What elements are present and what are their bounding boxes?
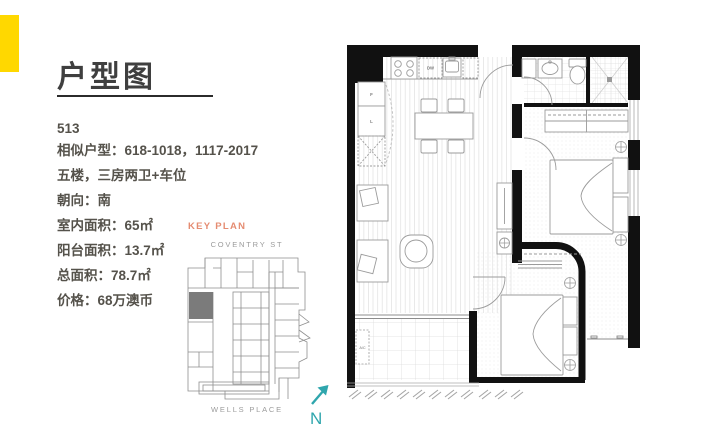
key-plan-map [183,252,311,404]
power-point-icon [616,235,627,246]
key-plan-building-outline [188,258,310,399]
desk-chair [357,254,376,273]
bathroom-cabinet [522,59,536,78]
key-plan-unit-highlight [189,292,213,319]
street-label-coventry: COVENTRY ST [183,240,311,249]
kitchen-stove [391,57,417,79]
desk-chair [360,188,379,207]
balcony-sliding-door [355,315,469,319]
floor-plan-drawing: DW F L [345,28,645,403]
dining-table [415,113,473,139]
edge-hatching [349,390,523,399]
power-point-icon [616,142,627,153]
detail-floor-rooms: 五楼，三房两卫+车位 [57,163,258,188]
accent-bar [0,15,19,72]
key-plan-label: KEY PLAN [188,221,246,232]
page-title: 户型图 [57,52,156,96]
dining-chair [448,99,464,112]
bedside-unit [613,197,628,232]
north-arrow-icon [312,385,329,404]
bed-2 [501,295,563,375]
compass: N [303,376,347,426]
north-label: N [310,409,322,426]
dining-chair [421,99,437,112]
bedside-unit [563,327,577,355]
round-table [405,240,427,262]
unit-number: 513 [57,120,258,138]
balustrade [347,383,479,386]
wardrobe [545,110,628,132]
power-point-icon [565,278,576,289]
detail-similar-units: 相似户型：618-1018，1117-2017 [57,138,258,163]
bedroom-1 [545,110,628,234]
dining-chair [448,140,464,153]
title-underline [57,95,213,97]
detail-orientation: 朝向：南 [57,188,258,213]
linen-label: L [370,119,373,124]
toilet [569,59,586,84]
ac-label: A/C [359,346,366,350]
dishwasher-label: DW [427,66,434,71]
bedside-unit [613,158,628,193]
kitchen-sink [443,57,461,77]
power-point-icon [565,360,576,371]
street-label-wells: WELLS PLACE [183,405,311,414]
dining-chair [421,140,437,153]
floor-plan-slide: 户型图 513 相似户型：618-1018，1117-2017 五楼，三房两卫+… [0,0,709,437]
fridge-label: F [370,92,373,97]
bedside-unit [563,297,577,325]
